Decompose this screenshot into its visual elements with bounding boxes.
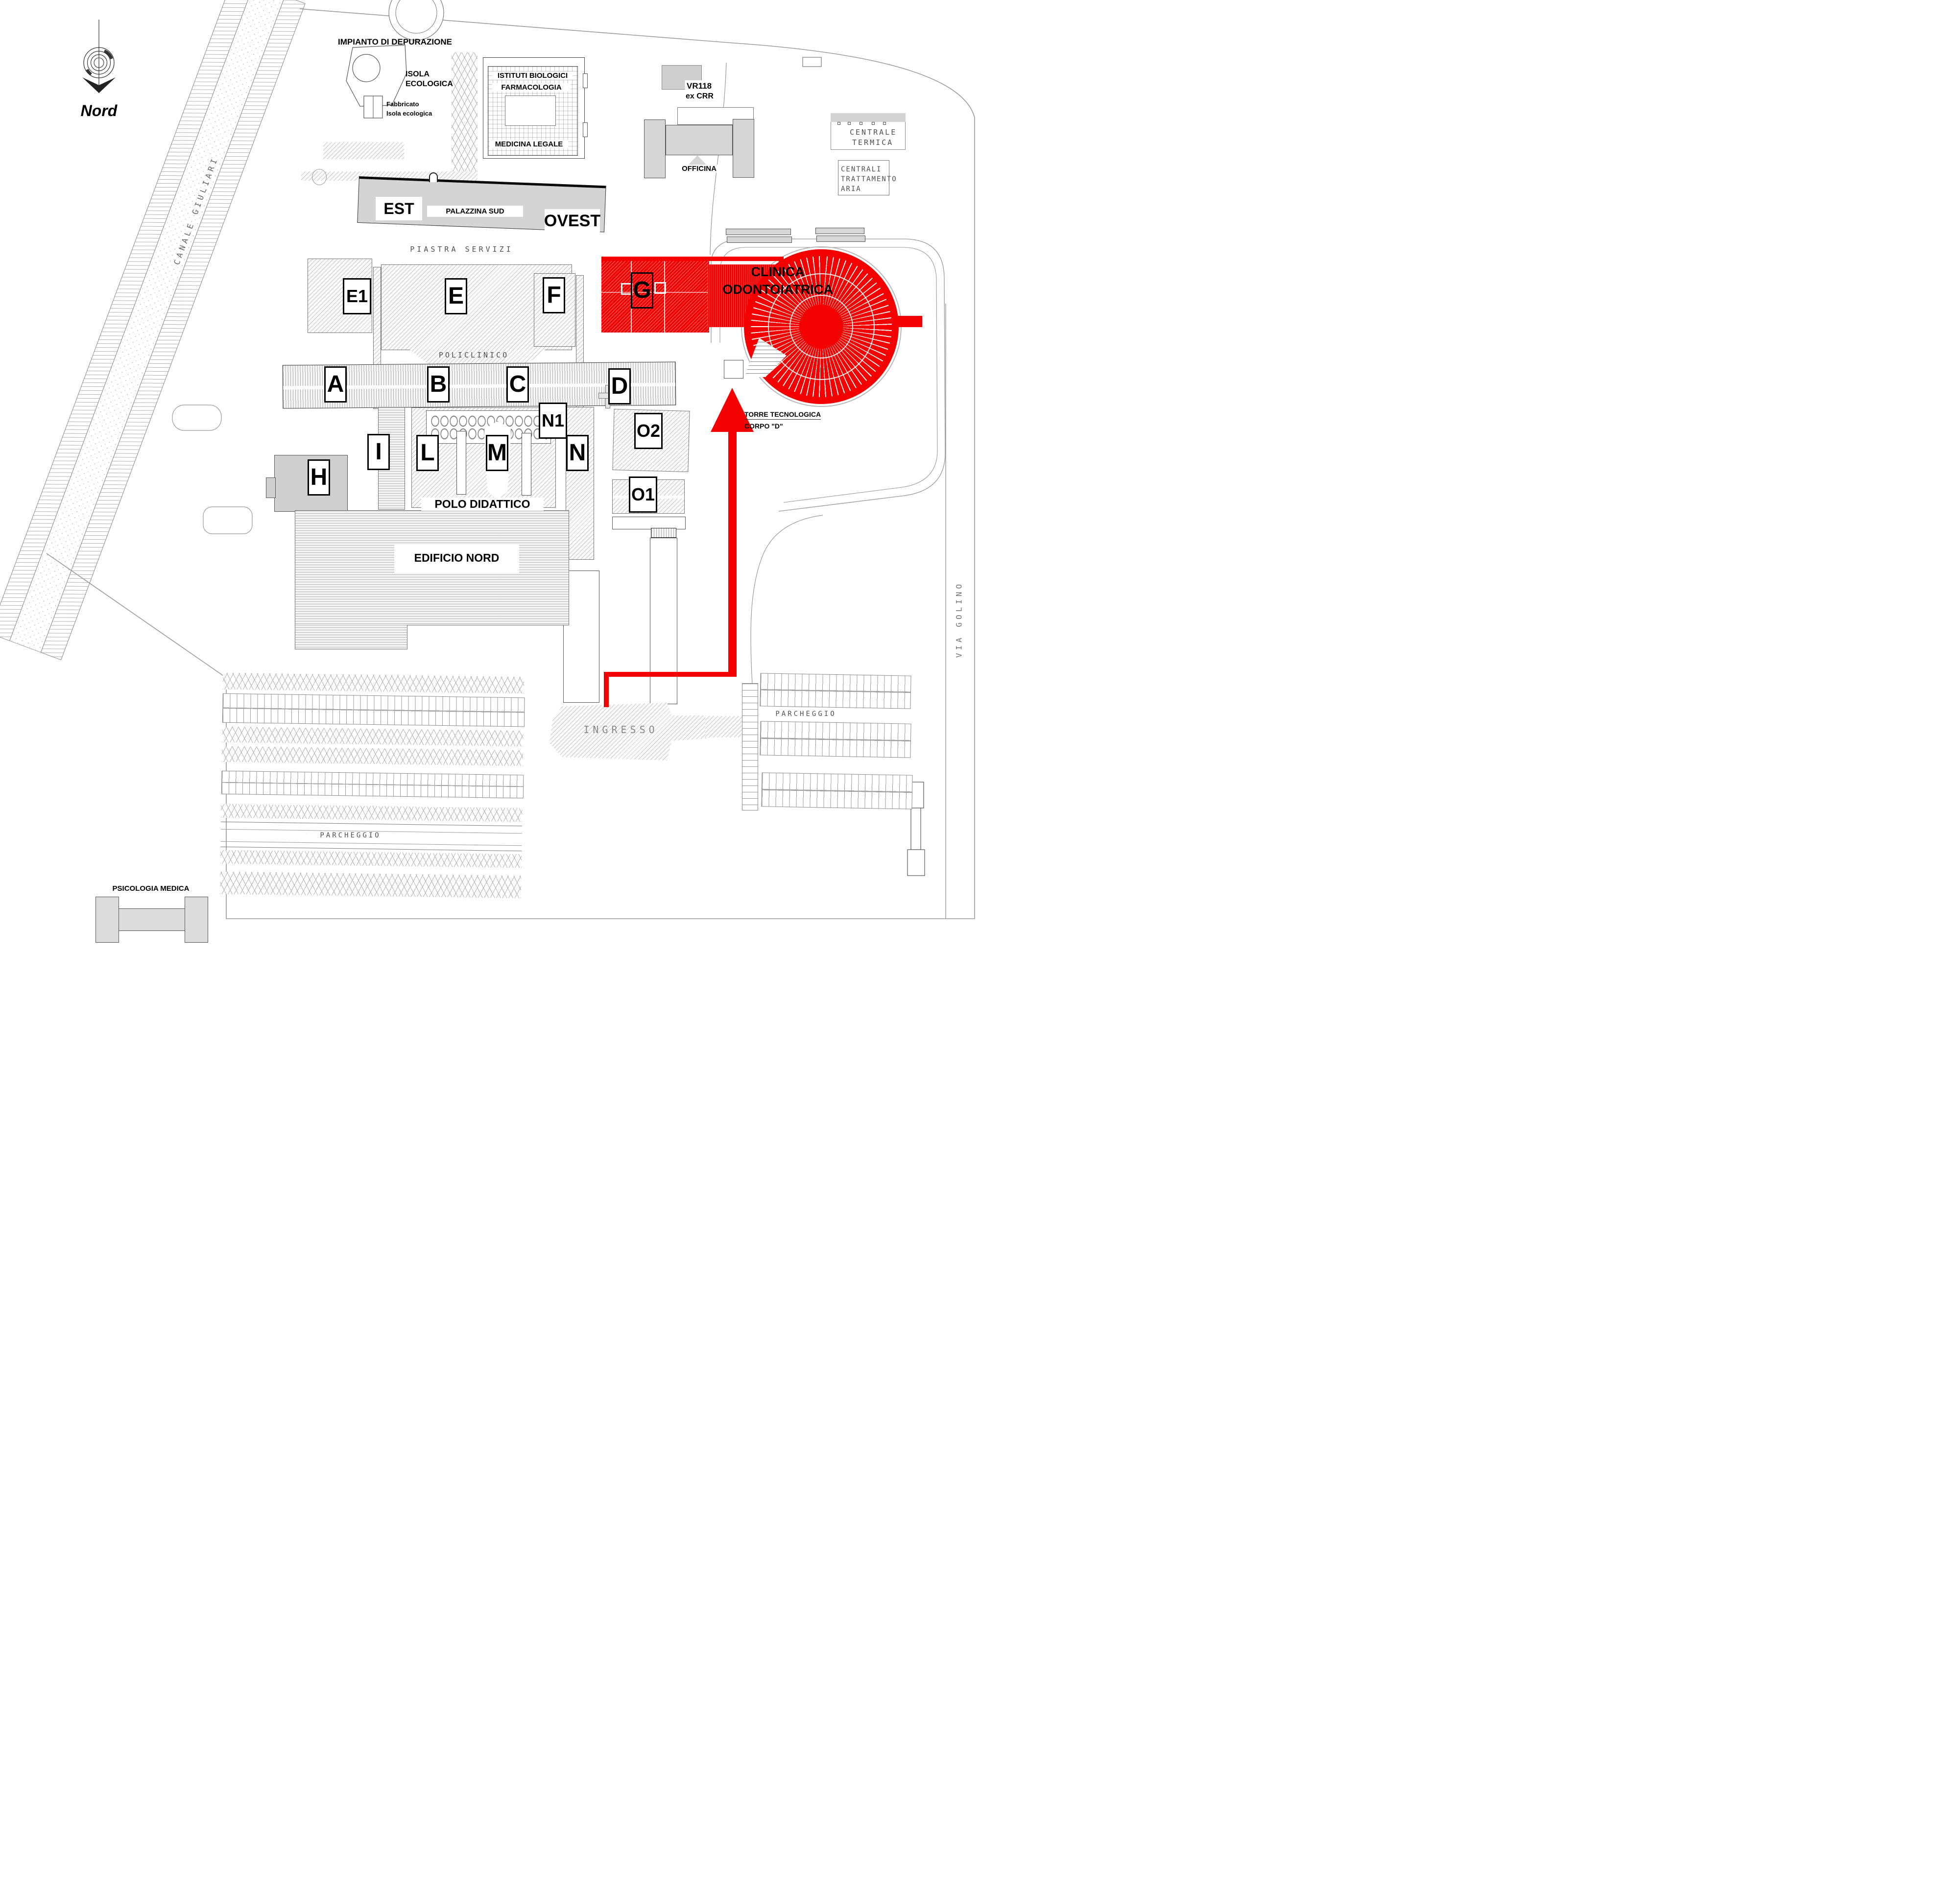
label-centrali-1: CENTRALI <box>841 166 882 173</box>
badge-e[interactable]: E <box>445 278 467 314</box>
label-ovest: OVEST <box>545 209 600 233</box>
route-horizontal <box>604 672 737 677</box>
badge-h[interactable]: H <box>308 459 330 496</box>
tree-row <box>220 850 522 868</box>
label-ingresso: INGRESSO <box>568 724 673 736</box>
hatch-band <box>323 142 404 159</box>
map-canvas: Nord IMPIANTO DI DEPURAZIONE ISOLA ECOLO… <box>0 0 979 952</box>
lane-line <box>220 841 522 852</box>
psicologia-wing <box>96 897 119 943</box>
canal <box>0 0 305 660</box>
badge-b[interactable]: B <box>427 366 450 403</box>
parking-row <box>222 693 525 727</box>
tree-row <box>222 746 523 766</box>
piastra-slab <box>816 236 865 242</box>
piastra-slab <box>727 237 792 243</box>
label-vr118-2: ex CRR <box>686 92 714 101</box>
small-service-building <box>724 360 743 379</box>
small-outbuilding <box>803 57 821 67</box>
label-parcheggio-est: PARCHEGGIO <box>758 710 854 718</box>
oval-island <box>312 169 327 185</box>
badge-d[interactable]: D <box>608 368 631 405</box>
parking-column <box>742 683 758 810</box>
label-isola-1: ISOLA <box>406 70 430 79</box>
label-istituti-2: FARMACOLOGIA <box>492 83 571 92</box>
parking-south <box>220 670 525 907</box>
fence-band <box>452 52 478 171</box>
officina-wing-right <box>733 119 754 178</box>
piastra-slab <box>726 229 791 235</box>
label-fabbricato-2: Isola ecologica <box>386 110 432 117</box>
clinic-block-g[interactable] <box>601 261 709 333</box>
badge-o2[interactable]: O2 <box>634 413 663 449</box>
label-via-golino: VIA GOLINO <box>955 581 964 658</box>
vent-square <box>872 122 875 125</box>
badge-n1[interactable]: N1 <box>539 403 567 439</box>
istituti-inner-court <box>505 95 556 126</box>
traffic-island <box>203 507 252 534</box>
label-officina: OFFICINA <box>676 165 722 173</box>
label-clinica-1: CLINICA <box>709 264 846 280</box>
badge-c[interactable]: C <box>506 366 529 403</box>
badge-f[interactable]: F <box>543 277 565 313</box>
route-riser <box>604 677 609 707</box>
officina-wing-left <box>644 119 666 178</box>
building-h-wing <box>266 477 276 498</box>
tree-row <box>223 673 524 694</box>
badge-i[interactable]: I <box>367 434 390 470</box>
label-est: EST <box>376 197 422 220</box>
badge-n[interactable]: N <box>566 435 589 471</box>
palazzina-arch <box>429 172 438 182</box>
tree-row <box>222 727 523 747</box>
parking-strip <box>760 721 911 758</box>
label-nord: Nord <box>65 102 133 120</box>
clinic-window-square <box>654 282 666 294</box>
centrale-termica-roofband <box>831 113 906 122</box>
label-isola-2: ECOLOGICA <box>406 80 453 89</box>
istituti-balcony <box>583 73 588 88</box>
north-access-road <box>710 63 726 255</box>
clinic-top-band <box>601 257 784 261</box>
south-corridor <box>650 538 677 704</box>
label-torre-1: TORRE TECNOLOGICA <box>744 410 821 420</box>
badge-e1[interactable]: E1 <box>343 278 371 314</box>
tree-row <box>220 872 522 899</box>
label-clinica-2: ODONTOIATRICA <box>704 282 851 297</box>
traffic-island <box>172 405 221 430</box>
label-centrali-2: TRATTAMENTO <box>841 175 897 183</box>
label-fabbricato-1: Fabbricato <box>386 100 419 108</box>
edificio-nord-wing <box>295 625 407 649</box>
north-compass-icon <box>82 20 116 93</box>
badge-g[interactable]: G <box>631 272 653 309</box>
corridor-n <box>566 407 594 560</box>
vent-square <box>883 122 886 125</box>
vent-square <box>860 122 862 125</box>
psicologia-center <box>119 908 185 931</box>
clinic-stub <box>898 316 922 327</box>
depuration-tank <box>353 54 380 82</box>
polo-slot <box>456 431 466 495</box>
badge-l[interactable]: L <box>416 435 439 471</box>
vent-square <box>848 122 851 125</box>
parking-row <box>221 771 524 799</box>
parking-strip <box>760 673 911 709</box>
vent-square <box>837 122 840 125</box>
parking-strip <box>761 772 912 809</box>
polo-slot <box>522 433 531 496</box>
route-shaft <box>728 430 737 675</box>
label-edificio-nord: EDIFICIO NORD <box>394 551 519 565</box>
badge-m[interactable]: M <box>486 435 508 471</box>
tree-row <box>221 804 522 822</box>
label-piastra-servizi: PIASTRA SERVIZI <box>402 245 522 254</box>
label-parcheggio-sud: PARCHEGGIO <box>303 832 398 839</box>
badge-o1[interactable]: O1 <box>629 476 657 513</box>
label-torre-2: CORPO "D" <box>744 422 783 430</box>
istituti-balcony <box>583 122 588 137</box>
label-istituti-1: ISTITUTI BIOLOGICI <box>492 71 573 80</box>
label-centrali-3: ARIA <box>841 185 861 193</box>
label-impianto: IMPIANTO DI DEPURAZIONE <box>338 37 451 47</box>
label-polo-didattico: POLO DIDATTICO <box>421 498 544 511</box>
label-vr118-1: VR118 <box>687 81 712 91</box>
label-centrale-1: CENTRALE <box>850 128 897 137</box>
clinic-hub <box>799 305 843 349</box>
south-spine <box>651 528 676 538</box>
label-policlinico: POLICLINICO <box>431 351 517 359</box>
label-palazzina-sud: PALAZZINA SUD <box>427 206 523 217</box>
psicologia-wing <box>185 897 208 943</box>
label-centrale-2: TERMICA <box>852 138 893 147</box>
label-medicina: MEDICINA LEGALE <box>490 140 568 148</box>
piastra-slab <box>815 228 864 234</box>
label-psicologia: PSICOLOGIA MEDICA <box>107 884 195 893</box>
officina-center <box>666 125 733 155</box>
badge-a[interactable]: A <box>324 366 347 403</box>
